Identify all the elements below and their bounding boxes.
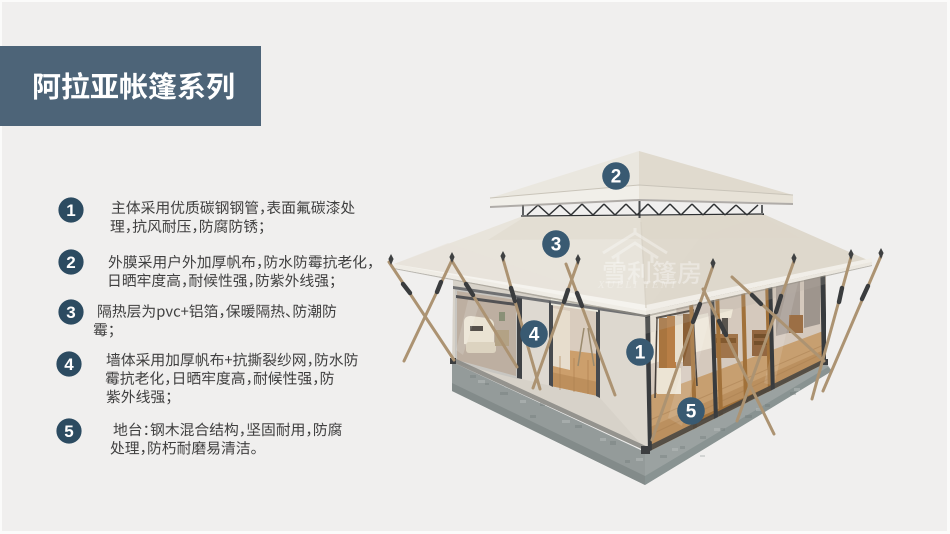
svg-text:2: 2 [66,253,75,272]
svg-text:XUELI TENT: XUELI TENT [597,279,678,291]
svg-text:4: 4 [64,355,74,374]
svg-text:2: 2 [611,167,622,188]
svg-text:5: 5 [686,402,697,423]
svg-text:4: 4 [529,325,540,346]
svg-text:5: 5 [64,422,73,441]
svg-text:3: 3 [66,303,75,322]
svg-text:3: 3 [551,235,562,256]
svg-text:1: 1 [635,343,646,364]
svg-text:1: 1 [66,201,75,220]
